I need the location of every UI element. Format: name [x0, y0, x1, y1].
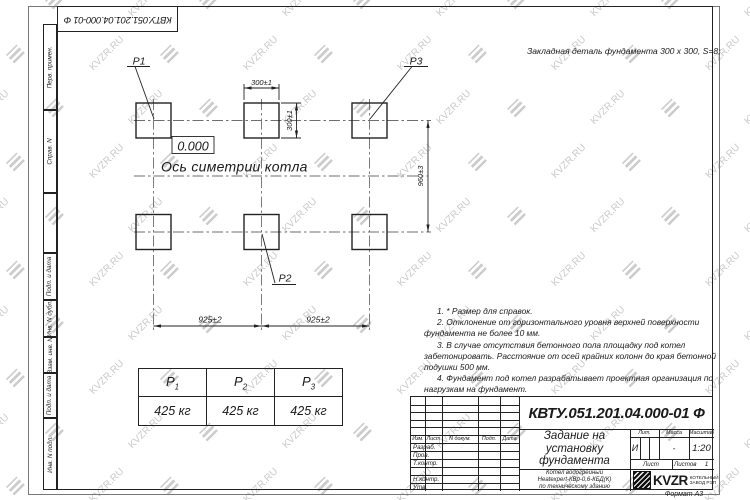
- load-table-header: P1: [139, 369, 207, 397]
- kvzr-logo-icon: [633, 471, 651, 489]
- load-table-header: P3: [275, 369, 343, 397]
- tb-col-ndoc: N докум.: [442, 435, 478, 443]
- tb-sheets-value: 1: [700, 459, 713, 469]
- note: 1. * Размер для справок.: [424, 306, 716, 317]
- dim-pad-width: 300±1: [251, 78, 272, 87]
- title-block-grid-line: [425, 397, 426, 491]
- axis-label: Ось симетрии котла: [161, 159, 308, 175]
- title-block-grid-line: [411, 427, 519, 428]
- pad-label-p2: P2: [279, 273, 292, 285]
- title-block-grid-line: [411, 412, 519, 413]
- load-table-value-row: 425 кг 425 кг 425 кг: [139, 397, 343, 426]
- dim-col-right: 925±2: [306, 315, 330, 325]
- elevation-value: 0.000: [177, 140, 208, 154]
- tb-title: Задание на установку фундамента: [519, 429, 630, 469]
- title-block-grid-line: [411, 435, 519, 436]
- title-block-grid-line: [630, 437, 714, 438]
- title-block-grid-line: [411, 483, 519, 484]
- tb-scale-value: 1:20: [689, 437, 714, 459]
- title-block-grid-line: [478, 397, 479, 491]
- title-block-grid-line: [411, 451, 519, 452]
- note: 4. Фундамент под котел разрабатывает про…: [424, 373, 716, 395]
- tb-col-list: Лист: [425, 435, 442, 443]
- title-block-grid-line: [649, 437, 650, 459]
- format-label: Формат А3: [652, 491, 716, 498]
- tb-lit-label: Лит.: [630, 429, 659, 437]
- load-table-value: 425 кг: [275, 397, 343, 426]
- title-block-grid-line: [640, 437, 641, 459]
- load-table-header: P2: [207, 369, 275, 397]
- tb-col-data: Дата: [500, 435, 519, 443]
- tb-col-podp: Подп.: [478, 435, 500, 443]
- title-block-grid-line: [411, 467, 519, 468]
- tb-row-nkontr: Н.контр.: [411, 475, 442, 483]
- title-block-grid-line: [519, 469, 714, 470]
- tb-row-prov: Пров.: [411, 451, 442, 459]
- dimension-lines: [127, 67, 428, 327]
- load-table: P1 P2 P3 425 кг 425 кг 425 кг: [138, 368, 343, 426]
- title-block-grid-line: [519, 397, 520, 491]
- dim-row-spacing: 960±3: [416, 165, 425, 187]
- title-block-grid-line: [519, 429, 714, 430]
- dim-pad-height: 300±1: [285, 110, 294, 131]
- title-block-grid-line: [442, 397, 443, 491]
- title-block: Изм. Лист N докум. Подп. Дата Разраб. Пр…: [410, 396, 713, 490]
- tb-sheets-label: Листов: [672, 459, 700, 469]
- title-block-grid-line: [411, 459, 519, 460]
- title-block-grid-line: [411, 420, 519, 421]
- tb-row-utv: Утв.: [411, 483, 442, 491]
- tb-mass-label: Масса: [659, 429, 689, 437]
- pad-label-p3: P3: [410, 56, 423, 68]
- tb-row-tkontr: Т.контр.: [411, 459, 442, 467]
- tb-sheet-label: Лист: [630, 459, 672, 469]
- drawing-sheet: KVZR.RUKVZR.RUKVZR.RUKVZR.RUKVZR.RUKVZR.…: [0, 0, 750, 500]
- title-block-grid-line: [411, 475, 519, 476]
- load-table-value: 425 кг: [139, 397, 207, 426]
- embedded-part-note: Закладная деталь фундамента 300 x 300, S…: [527, 46, 721, 56]
- title-block-grid-line: [500, 397, 501, 491]
- dim-col-left: 925±2: [198, 315, 222, 325]
- tb-doc-number: КВТУ.051.201.04.000-01 Ф: [519, 397, 714, 429]
- title-block-grid-line: [411, 443, 519, 444]
- title-block-grid-line: [630, 429, 631, 491]
- tb-company-name: КОТЕЛЬНЫЙ ЗАВОД РЭП: [690, 475, 719, 485]
- tb-company: KVZR КОТЕЛЬНЫЙ ЗАВОД РЭП: [630, 469, 714, 491]
- load-table-header-row: P1 P2 P3: [139, 369, 343, 397]
- title-block-grid-line: [411, 405, 519, 406]
- tb-lit-value: И: [630, 437, 640, 459]
- title-block-grid-line: [672, 459, 673, 469]
- tb-company-logo-text: KVZR: [653, 473, 688, 488]
- notes-block: 1. * Размер для справок. 2. Отклонение о…: [424, 306, 716, 396]
- title-block-grid-line: [659, 429, 660, 459]
- pad-label-p1: P1: [133, 56, 146, 68]
- load-table-value: 425 кг: [207, 397, 275, 426]
- title-block-grid-line: [630, 459, 714, 460]
- tb-row-razrab: Разраб.: [411, 443, 442, 451]
- title-block-grid-line: [689, 429, 690, 459]
- tb-mass-value: -: [659, 437, 689, 459]
- note: 3. В случае отсутствия бетонного пола пл…: [424, 340, 716, 374]
- tb-scale-label: Масштаб: [689, 429, 714, 437]
- note: 2. Отклонение от горизонтального уровня …: [424, 317, 716, 339]
- tb-product: Котел водогрейный Heatexpert-КВр-0,6-КБД…: [519, 469, 630, 491]
- tb-col-izm: Изм.: [411, 435, 425, 443]
